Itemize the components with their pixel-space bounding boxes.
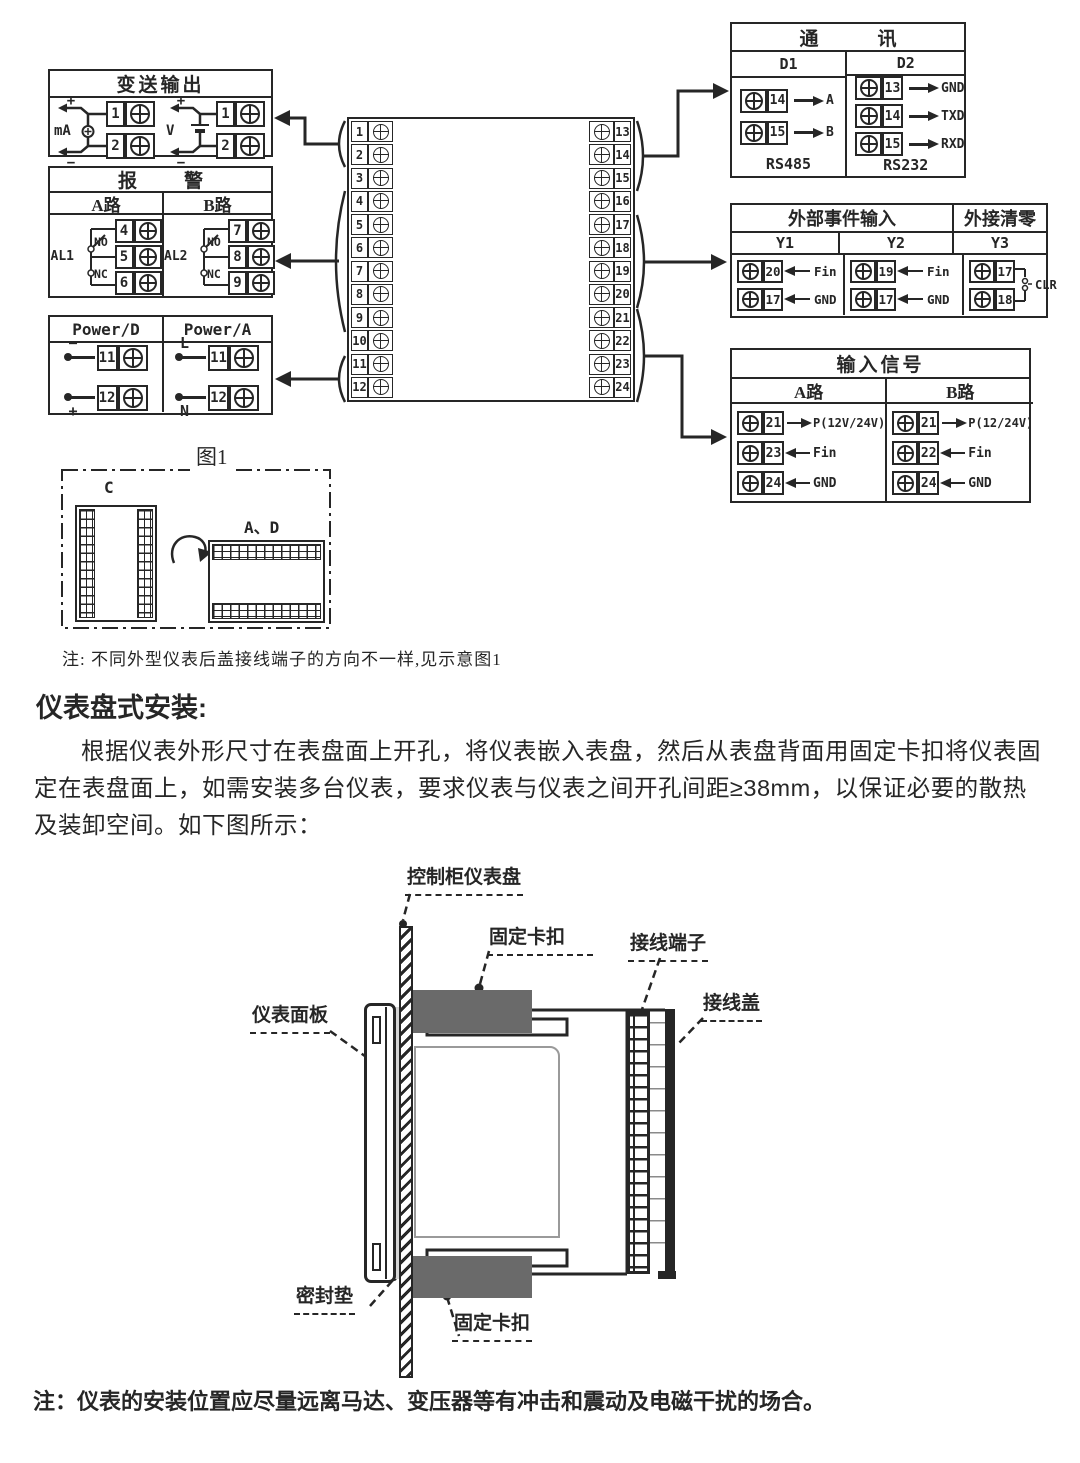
terminal-row: 6 <box>115 271 162 295</box>
terminal-number: 20 <box>614 284 631 305</box>
power-d-col: − 11 + 12 <box>50 343 162 412</box>
terminal-number: 15 <box>882 132 903 156</box>
alarm-header-a: A路 <box>50 193 162 215</box>
terminal-screw <box>737 441 763 465</box>
transmit-output-box: 变送输出 mA + − <box>48 69 273 157</box>
screw-icon <box>594 310 610 326</box>
clear-row: 18 <box>969 288 1015 311</box>
terminal-number: 14 <box>614 144 631 165</box>
screw-icon <box>742 475 759 492</box>
bezel-inner-line <box>385 1007 387 1279</box>
terminal-row: 15 <box>589 168 631 189</box>
terminal-number: 19 <box>876 260 896 283</box>
terminal-row: 11 <box>351 354 393 375</box>
terminal-screw <box>247 219 275 243</box>
label-gasket: 密封垫 <box>294 1281 355 1315</box>
terminal-screw <box>134 271 162 295</box>
terminal-number: 5 <box>351 214 368 235</box>
terminal-number: 7 <box>228 219 247 243</box>
power-row: − 11 <box>50 345 162 371</box>
terminal-screw <box>118 345 148 371</box>
terminal-number: 8 <box>228 245 247 269</box>
relay-contact-symbol: NO NC <box>194 216 228 298</box>
terminal-screw <box>737 260 763 283</box>
y2-col: 19 Fin 17 GND <box>843 255 962 315</box>
ma-pins: 1 2 <box>106 101 155 159</box>
relay-name: AL1 <box>51 249 81 264</box>
input-b-col: B路 21 P(12/24V) 22 Fin <box>885 379 1033 502</box>
screw-icon <box>860 107 878 125</box>
relay-contact-symbol: NO NC <box>81 216 115 298</box>
terminal-row: 10 <box>351 330 393 351</box>
comm-box: 通 讯 D1 14 A 15 B <box>730 22 966 178</box>
screw-icon <box>594 193 610 209</box>
terminal-number: 24 <box>614 377 631 398</box>
terminal-screw <box>118 385 148 411</box>
terminal-row: 3 <box>351 168 393 189</box>
screw-icon <box>594 356 610 372</box>
power-a-col: L 11 N 12 <box>162 343 271 412</box>
install-paragraph: 根据仪表外形尺寸在表盘面上开孔，将仪表嵌入表盘，然后从表盘背面用固定卡扣将仪表固… <box>34 733 1048 844</box>
right-pin-column: 13 14 15 16 17 <box>589 121 631 398</box>
terminal-screw <box>589 284 614 305</box>
comm-row: 13 GND <box>855 76 964 100</box>
svg-text:mA: mA <box>54 123 71 139</box>
terminal-number: 23 <box>614 354 631 375</box>
power-row: L 11 <box>164 345 271 371</box>
arrow-right-icon <box>909 87 929 90</box>
figure1-label-c: C <box>104 478 114 497</box>
terminal-screw <box>134 219 162 243</box>
figure1-device-c <box>75 505 157 622</box>
terminal-number: 21 <box>918 411 939 435</box>
screw-icon <box>373 333 389 349</box>
arrow-left-icon <box>907 298 923 301</box>
screw-icon <box>594 124 610 140</box>
terminal-screw <box>855 104 882 128</box>
signal-label: GND <box>968 476 991 491</box>
arrow-right-icon <box>909 143 929 146</box>
manual-page: 变送输出 mA + − <box>0 0 1080 1463</box>
terminal-screw <box>589 214 614 235</box>
screw-icon <box>594 240 610 256</box>
terminal-screw <box>589 121 614 142</box>
terminal-screw <box>589 237 614 258</box>
terminal-number: 1 <box>216 101 235 127</box>
terminal-screw <box>589 377 614 398</box>
screw-icon <box>139 248 157 266</box>
y2-header: Y2 <box>838 233 952 255</box>
polarity-label: − <box>69 334 78 352</box>
terminal-strip <box>212 603 321 619</box>
signal-label: Fin <box>814 264 837 279</box>
terminal-row: 7 <box>228 219 275 243</box>
terminal-row: 9 <box>351 307 393 328</box>
comm-row: 15 RXD <box>855 132 964 156</box>
terminal-row: 23 <box>589 354 631 375</box>
terminal-screw <box>740 121 767 145</box>
screw-icon <box>373 147 389 163</box>
terminal-screw <box>855 76 882 100</box>
clear-row: 17 <box>969 260 1015 283</box>
terminal-screw <box>969 288 995 311</box>
terminal-screw <box>368 330 393 351</box>
terminal-number: 4 <box>351 191 368 212</box>
terminal-number: 17 <box>763 288 783 311</box>
terminal-screw <box>892 411 918 435</box>
screw-icon <box>123 348 143 368</box>
y1-header: Y1 <box>732 233 838 255</box>
terminal-row: 4 <box>351 191 393 212</box>
neutral-label: N <box>180 402 189 420</box>
terminal-strip <box>137 509 153 618</box>
terminal-row: 2 <box>106 133 155 159</box>
terminal-number: 14 <box>882 104 903 128</box>
terminal-row: 1 <box>351 121 393 142</box>
relay-name: AL2 <box>164 249 194 264</box>
svg-text:NO: NO <box>94 235 108 249</box>
terminal-screw <box>368 121 393 142</box>
screw-icon <box>373 193 389 209</box>
wire-icon: + <box>65 396 95 399</box>
terminal-row: 2 <box>216 133 265 159</box>
transmit-group-v: V + − <box>164 101 265 159</box>
terminal-screw <box>737 288 763 311</box>
terminal-number: 21 <box>614 307 631 328</box>
screw-icon <box>745 124 763 142</box>
arrow-left-icon <box>950 452 965 455</box>
terminal-number: 24 <box>763 471 784 495</box>
signal-label: GND <box>927 292 950 307</box>
figure1-note: 注: 不同外型仪表后盖接线端子的方向不一样,见示意图1 <box>62 645 502 670</box>
arrow-left-icon <box>794 298 810 301</box>
clear-title: 外接清零 <box>952 205 1046 231</box>
input-title: 输入信号 <box>732 350 1029 379</box>
label-cabinet-panel: 控制柜仪表盘 <box>405 862 523 896</box>
terminal-row: 20 <box>589 284 631 305</box>
comm-row: 14 TXD <box>855 104 964 128</box>
screw-icon <box>855 291 872 308</box>
event-row: 17 GND <box>850 288 962 311</box>
terminal-row: 1 <box>106 101 155 127</box>
screw-icon <box>860 135 878 153</box>
terminal-number: 22 <box>918 441 939 465</box>
screw-icon <box>742 291 759 308</box>
screw-icon <box>594 170 610 186</box>
screw-icon <box>373 379 389 395</box>
terminal-number: 17 <box>614 214 631 235</box>
y3-header: Y3 <box>952 233 1046 255</box>
screw-icon <box>139 274 157 292</box>
screw-icon <box>742 445 759 462</box>
signal-label: A <box>826 93 834 108</box>
transmit-output-title: 变送输出 <box>50 71 271 98</box>
screw-icon <box>139 222 157 240</box>
terminal-number: 17 <box>995 260 1015 283</box>
screw-icon <box>897 475 914 492</box>
screw-icon <box>373 286 389 302</box>
transmit-group-ma: mA + − <box>54 101 155 159</box>
arrow-left-icon <box>795 452 810 455</box>
fixing-clip-bottom <box>413 1256 532 1298</box>
screw-icon <box>240 136 260 156</box>
terminal-screw <box>125 133 155 159</box>
terminal-screw <box>589 144 614 165</box>
terminal-row: 13 <box>589 121 631 142</box>
signal-label: TXD <box>941 109 964 124</box>
bezel-detail <box>372 1243 381 1271</box>
event-title: 外部事件输入 <box>732 205 952 231</box>
terminal-row: 2 <box>351 144 393 165</box>
terminal-screw <box>368 284 393 305</box>
terminal-number: 10 <box>351 330 368 351</box>
input-a-header: A路 <box>732 379 885 404</box>
terminal-screw <box>368 354 393 375</box>
screw-icon <box>252 248 270 266</box>
terminal-ladder <box>627 1011 650 1274</box>
terminal-number: 3 <box>351 168 368 189</box>
screw-icon <box>897 445 914 462</box>
terminal-number: 23 <box>763 441 784 465</box>
terminal-number: 2 <box>106 133 125 159</box>
svg-text:NO: NO <box>207 235 221 249</box>
alarm-box: 报 警 A路 B路 AL1 NO NC <box>48 166 273 298</box>
signal-label: P(12V/24V) <box>813 416 885 430</box>
wire-icon: L <box>176 356 206 359</box>
terminal-screw <box>740 89 767 113</box>
terminal-number: 6 <box>351 237 368 258</box>
signal-label: B <box>826 125 834 140</box>
arrow-right-icon <box>794 99 814 102</box>
terminal-screw-lines <box>650 1022 665 1264</box>
terminal-screw <box>229 345 259 371</box>
terminal-number: 7 <box>351 261 368 282</box>
terminal-number: 9 <box>228 271 247 295</box>
screw-icon <box>123 388 143 408</box>
terminal-row: 24 <box>589 377 631 398</box>
terminal-number: 18 <box>614 237 631 258</box>
terminal-row: 9 <box>228 271 275 295</box>
screw-icon <box>897 415 914 432</box>
display-window <box>414 1046 560 1238</box>
figure1-device-ad <box>208 540 325 623</box>
terminal-row: 14 <box>589 144 631 165</box>
comm-d2-col: D2 13 GND 14 TXD <box>845 52 964 177</box>
terminal-screw <box>235 133 265 159</box>
screw-icon <box>373 356 389 372</box>
terminal-number: 8 <box>351 284 368 305</box>
input-a-col: A路 21 P(12V/24V) 23 Fin <box>732 379 885 502</box>
terminal-screw <box>737 411 763 435</box>
terminal-number: 13 <box>614 121 631 142</box>
screw-icon <box>594 286 610 302</box>
screw-icon <box>373 263 389 279</box>
terminal-row: 17 <box>589 214 631 235</box>
screw-icon <box>742 263 759 280</box>
terminal-screw <box>368 307 393 328</box>
signal-label: RXD <box>941 137 964 152</box>
terminal-screw <box>368 168 393 189</box>
figure1-caption: 图1 <box>190 441 234 471</box>
screw-icon <box>594 147 610 163</box>
terminal-number: 5 <box>115 245 134 269</box>
v-source-symbol: V + − <box>164 101 216 159</box>
terminal-screw <box>969 260 995 283</box>
signal-label: GND <box>814 292 837 307</box>
terminal-number: 11 <box>351 354 368 375</box>
v-pins: 1 2 <box>216 101 265 159</box>
terminal-strip <box>79 509 95 618</box>
arrow-right-icon <box>794 131 814 134</box>
bottom-note: 注：仪表的安装位置应尽量远离马达、变压器等有冲击和震动及电磁干扰的场合。 <box>33 1384 825 1416</box>
cabinet-panel <box>399 926 413 1378</box>
svg-text:NC: NC <box>94 267 108 281</box>
comm-title: 通 讯 <box>732 24 964 52</box>
arrow-right-icon <box>942 422 957 425</box>
comm-row: 15 B <box>740 121 845 145</box>
wiring-cover-bar <box>665 1009 675 1276</box>
screw-icon <box>373 310 389 326</box>
terminal-screw <box>855 132 882 156</box>
screw-icon <box>594 217 610 233</box>
alarm-b-channel: AL2 NO NC 7 <box>162 215 275 296</box>
input-signal-box: 输入信号 A路 21 P(12V/24V) 23 Fin <box>730 348 1031 503</box>
terminal-screw <box>368 237 393 258</box>
signal-label: P(12/24V) <box>968 416 1033 430</box>
terminal-screw <box>134 245 162 269</box>
screw-icon <box>860 79 878 97</box>
alarm-header-b: B路 <box>162 193 271 215</box>
terminal-screw <box>247 271 275 295</box>
terminal-number: 18 <box>995 288 1015 311</box>
signal-label: GND <box>813 476 836 491</box>
alarm-a-channel: AL1 NO NC 4 <box>50 215 162 296</box>
terminal-row: 8 <box>228 245 275 269</box>
terminal-screw <box>850 260 876 283</box>
wiring-cover-foot <box>658 1271 676 1279</box>
terminal-screw <box>229 385 259 411</box>
terminal-number: 1 <box>351 121 368 142</box>
terminal-row: 5 <box>115 245 162 269</box>
screw-icon <box>594 263 610 279</box>
input-row: 24 GND <box>892 471 1033 495</box>
terminal-row: 21 <box>589 307 631 328</box>
comm-d1-header: D1 <box>732 52 845 78</box>
terminal-number: 6 <box>115 271 134 295</box>
input-b-header: B路 <box>887 379 1033 404</box>
screw-icon <box>252 222 270 240</box>
arrow-right-icon <box>909 115 929 118</box>
terminal-row: 18 <box>589 237 631 258</box>
terminal-row: 8 <box>351 284 393 305</box>
input-row: 24 GND <box>737 471 885 495</box>
terminal-screw <box>589 168 614 189</box>
terminal-screw <box>892 441 918 465</box>
terminal-number: 13 <box>882 76 903 100</box>
terminal-row: 6 <box>351 237 393 258</box>
input-row: 21 P(12/24V) <box>892 411 1033 435</box>
screw-icon <box>373 170 389 186</box>
screw-icon <box>974 263 991 280</box>
terminal-screw <box>368 191 393 212</box>
comm-d1-footer: RS485 <box>732 155 845 177</box>
power-row: + 12 <box>50 385 162 411</box>
screw-icon <box>745 92 763 110</box>
terminal-screw <box>589 354 614 375</box>
terminal-number: 21 <box>763 411 784 435</box>
terminal-screw <box>368 214 393 235</box>
terminal-number: 24 <box>918 471 939 495</box>
screw-icon <box>594 379 610 395</box>
arrow-left-icon <box>795 482 810 485</box>
event-row: 19 Fin <box>850 260 962 283</box>
input-row: 22 Fin <box>892 441 1033 465</box>
terminal-screw <box>368 261 393 282</box>
arrow-left-icon <box>907 270 923 273</box>
label-wiring-cover: 接线盖 <box>701 988 762 1022</box>
meter-front-bezel <box>364 1003 396 1283</box>
screw-icon <box>240 104 260 124</box>
signal-label: GND <box>941 81 964 96</box>
terminal-screw <box>247 245 275 269</box>
comm-d2-footer: RS232 <box>847 156 964 177</box>
label-front-panel: 仪表面板 <box>250 1000 330 1034</box>
terminal-number: 2 <box>351 144 368 165</box>
alarm-title: 报 警 <box>50 168 271 193</box>
ma-source-symbol: mA + − <box>54 101 106 159</box>
event-row: 17 GND <box>737 288 843 311</box>
terminal-screw <box>737 471 763 495</box>
svg-text:V: V <box>166 123 175 139</box>
arrow-right-icon <box>787 422 802 425</box>
screw-icon <box>373 124 389 140</box>
terminal-row: 12 <box>351 377 393 398</box>
svg-text:+: + <box>67 93 75 109</box>
terminal-number: 11 <box>208 345 229 371</box>
screw-icon <box>594 333 610 349</box>
rotate-arrow-icon <box>172 536 212 563</box>
section-heading: 仪表盘式安装: <box>36 686 207 725</box>
alarm-b-pins: 7 8 9 <box>228 219 275 295</box>
polarity-label: + <box>69 402 78 420</box>
signal-label: Fin <box>927 264 950 279</box>
screw-icon <box>252 274 270 292</box>
terminal-screw <box>589 307 614 328</box>
y3-col: 17 18 CLR <box>962 255 1059 315</box>
terminal-number: 19 <box>614 261 631 282</box>
comm-d1-col: D1 14 A 15 B RS485 <box>732 52 845 177</box>
rear-terminal-block: 1 2 3 4 5 <box>347 117 635 402</box>
label-wiring-terminal: 接线端子 <box>628 928 708 962</box>
arrow-left-icon <box>794 270 810 273</box>
terminal-row: 22 <box>589 330 631 351</box>
terminal-number: 16 <box>614 191 631 212</box>
clear-switch-symbol: CLR <box>1015 257 1059 313</box>
terminal-row: 7 <box>351 261 393 282</box>
line-label: L <box>180 334 189 352</box>
terminal-screw <box>235 101 265 127</box>
screw-icon <box>234 348 254 368</box>
comm-row: 14 A <box>740 89 845 113</box>
svg-text:NC: NC <box>207 267 221 281</box>
screw-icon <box>742 415 759 432</box>
screw-icon <box>974 291 991 308</box>
terminal-number: 14 <box>767 89 788 113</box>
label-fixing-clip-bottom: 固定卡扣 <box>452 1308 532 1342</box>
terminal-screw <box>368 144 393 165</box>
terminal-row: 16 <box>589 191 631 212</box>
terminal-screw <box>589 191 614 212</box>
